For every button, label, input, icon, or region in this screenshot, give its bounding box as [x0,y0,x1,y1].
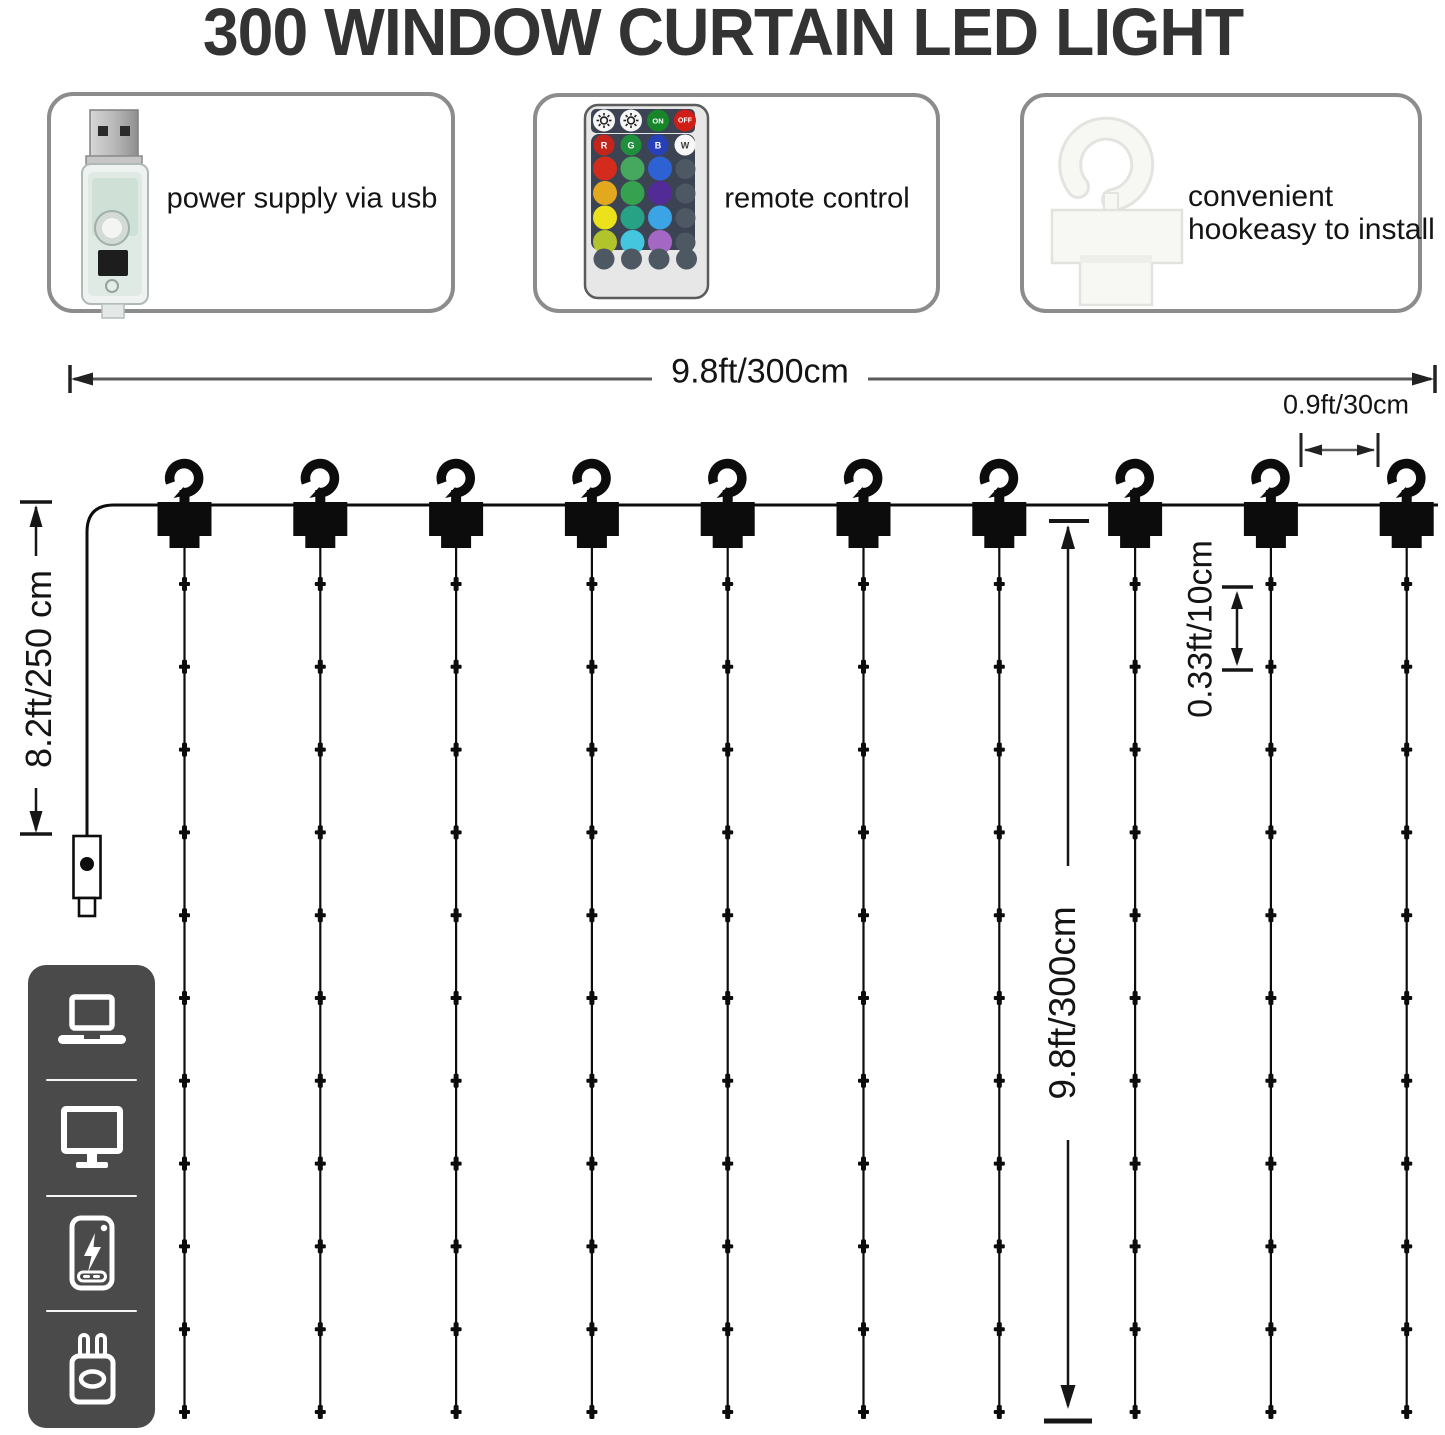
usb-charger-icon [60,1333,124,1407]
power-bank-icon [61,1215,123,1293]
hook-spacing-dimension [1301,433,1378,467]
w-button-label: W [681,141,690,151]
hook-label: convenient hookeasy to install [1188,180,1435,246]
curtain-width-label: 9.8ft/300cm [665,353,855,392]
usb-connector-photo [70,104,165,320]
hook-and-string [565,464,619,1419]
hook-label-line1: convenient [1188,180,1435,213]
cord-length-label: 8.2ft/250 cm [18,570,60,768]
page-title: 300 WINDOW CURTAIN LED LIGHT [202,0,1242,71]
hook-and-string [837,464,891,1419]
off-button-label: OFF [678,118,693,125]
usb-connector-drawing [74,836,101,916]
g-button-label: G [627,141,634,151]
hook-and-string [293,464,347,1419]
remote-control-photo: ON OFF R G B W [583,103,710,300]
hook-and-string [1380,464,1434,1419]
hook-spacing-label: 0.9ft/30cm [1283,390,1409,421]
hook-and-string [972,464,1026,1419]
sidebar-cell-usb-charger [28,1312,155,1428]
laptop-icon [55,994,129,1052]
hook-and-string [701,464,755,1419]
hook-label-line2: hookeasy to install [1188,213,1435,246]
b-button-label: B [655,141,662,151]
on-button-label: ON [652,117,663,126]
remote-control-label: remote control [724,183,909,216]
hook-photo [1040,105,1190,310]
usb-power-label: power supply via usb [167,183,438,216]
hook-and-string [429,464,483,1419]
hook-and-string [158,464,212,1419]
product-infographic: 9.8ft/300cm 0.9ft/30cm 8.2ft/250 cm 9.8f… [0,0,1445,1435]
sidebar-cell-laptop [28,965,155,1081]
hook-and-string [1108,464,1162,1419]
r-button-label: R [601,141,608,151]
hook-and-string [1244,464,1298,1419]
led-spacing-dimension [1222,587,1253,670]
compatibility-sidebar [28,965,155,1428]
monitor-icon [55,1106,129,1172]
sidebar-cell-power-bank [28,1197,155,1313]
sidebar-cell-monitor [28,1081,155,1197]
led-spacing-label: 0.33ft/10cm [1182,540,1221,718]
curtain-drop-label: 9.8ft/300cm [1042,906,1084,1099]
